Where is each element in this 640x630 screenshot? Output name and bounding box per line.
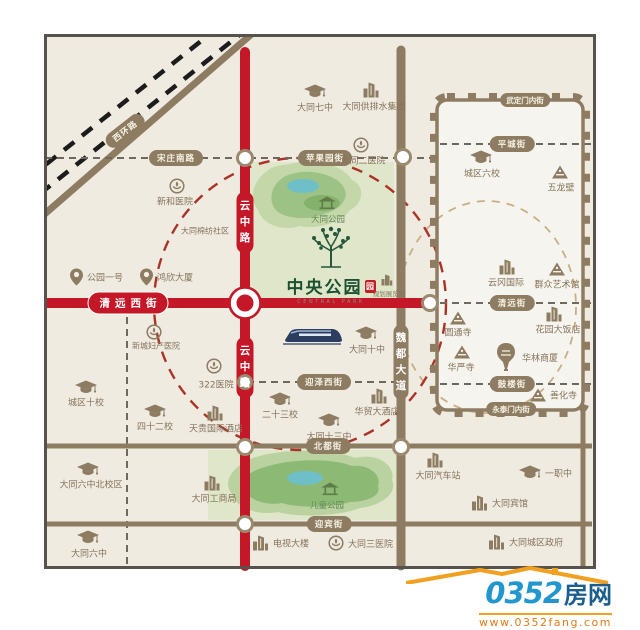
project-logo: 中央公园园 CENTRAL PARK: [283, 226, 379, 305]
watermark-word: 房网: [564, 581, 612, 609]
site-watermark: 0352房网 www.0352fang.com: [398, 566, 612, 630]
project-name: 中央公园: [287, 278, 363, 298]
project-seal: 园: [365, 280, 376, 293]
hsr-train-icon: [283, 327, 343, 345]
watermark-number: 0352: [485, 576, 562, 610]
watermark-url: www.0352fang.com: [479, 613, 612, 629]
project-name-en: CENTRAL PARK: [283, 299, 379, 305]
tree-icon: [307, 253, 355, 272]
map-base-graphics: [0, 0, 640, 615]
children-park-blob: [228, 451, 393, 516]
location-map: 西环路宋庄南路苹果园街武定门内街平城街清远街鼓楼街永泰门内街迎泽西街北都街迎宾街…: [0, 0, 640, 615]
